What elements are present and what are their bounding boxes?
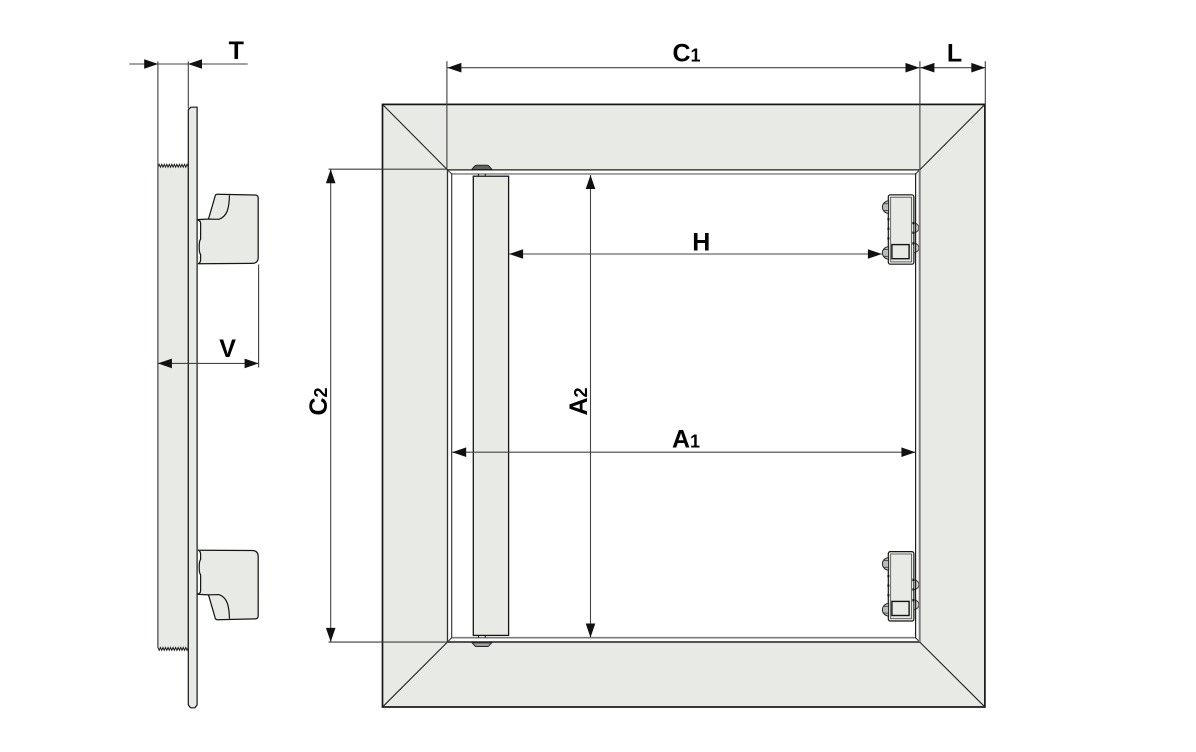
svg-text:H: H xyxy=(692,228,710,256)
svg-text:C1: C1 xyxy=(672,40,700,68)
svg-text:V: V xyxy=(219,335,236,363)
svg-text:L: L xyxy=(947,40,962,68)
svg-text:T: T xyxy=(229,37,244,65)
svg-text:C2: C2 xyxy=(305,387,333,415)
